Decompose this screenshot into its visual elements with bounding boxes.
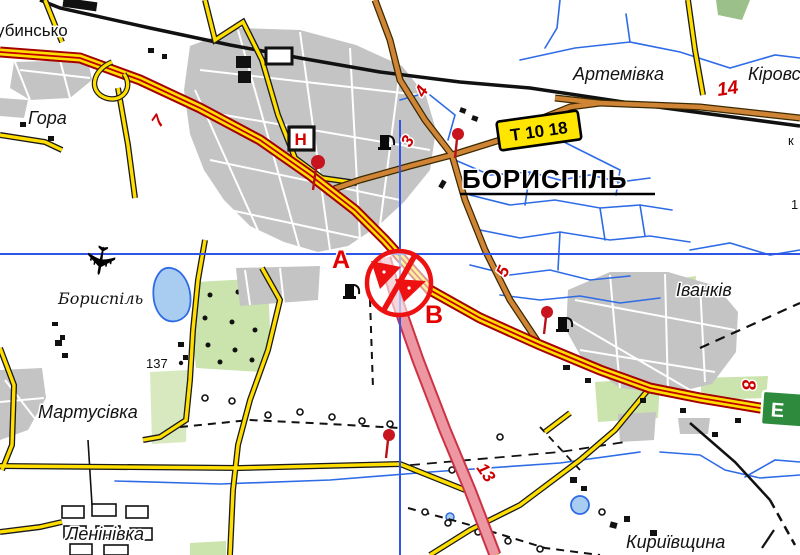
- hospital-letter: Н: [295, 130, 307, 149]
- label-ivankiv: Іванків: [676, 280, 732, 300]
- route-marker-a[interactable]: А: [332, 246, 350, 274]
- label-tick: [762, 530, 774, 548]
- label-kirovske: Кіровське: [748, 64, 800, 84]
- edge-fragment-k: к: [788, 133, 794, 148]
- railway-station-icon: [266, 48, 292, 64]
- airport-icon: ✈: [75, 240, 124, 281]
- label-settlement-partial: убинсько: [0, 21, 68, 40]
- restriction-marker-icon[interactable]: [367, 251, 431, 315]
- hospital-icon: Н: [289, 127, 314, 150]
- pond: [571, 496, 589, 514]
- e-sign-text: Е: [770, 399, 785, 422]
- label-artemivka: Артемівка: [572, 64, 664, 84]
- map-canvas[interactable]: ✈ Н Т 10 18 Е 7 4 3 14 5 8 13: [0, 0, 800, 555]
- label-boryspil-airport: Бориспіль: [57, 289, 143, 308]
- label-leninivka: Ленінівка: [65, 524, 144, 544]
- route-marker-b[interactable]: В: [425, 301, 443, 329]
- label-martusivka: Мартусівка: [38, 402, 138, 422]
- road-number-13: 13: [473, 459, 500, 486]
- road-number-14: 14: [716, 77, 740, 101]
- edge-fragment-1: 1: [791, 197, 798, 212]
- road-sign-e: Е: [761, 391, 800, 429]
- road-number-7: 7: [148, 110, 170, 130]
- label-boryspil-city: БОРИСПІЛЬ: [462, 164, 628, 194]
- elevation-point: 137: [146, 356, 183, 371]
- map-image: ✈ Н Т 10 18 Е 7 4 3 14 5 8 13: [0, 0, 800, 555]
- elevation-value: 137: [146, 356, 168, 371]
- label-kyryivshchyna: Кириївщина: [626, 532, 725, 552]
- label-hora: Гора: [28, 108, 67, 128]
